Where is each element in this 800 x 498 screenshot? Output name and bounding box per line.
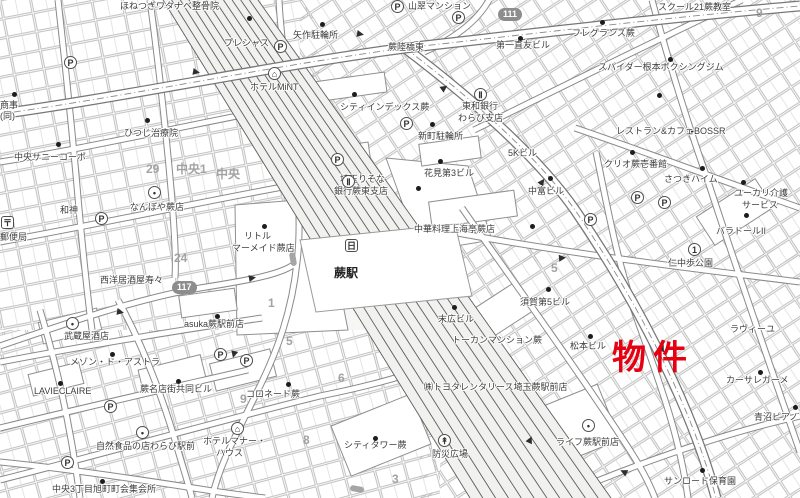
label-warabi-meitengai-bldg: 蕨名店街共同ビル [140,384,212,394]
label-clio-warabi-ichibankan: クリオ蕨壱番館 [604,159,667,169]
building-marker-dot [12,92,17,97]
building-marker-dot [700,166,705,171]
label-chuo3-shukaijo: 中央3丁目旭町町会集会所 [52,484,156,494]
building-marker-dot [668,57,673,62]
parking-icon: P [274,40,287,53]
label-block-29: 29 [146,164,159,174]
bank-icon: Ⅱ [474,88,487,101]
building-marker-dot [110,352,115,357]
label-towa-bank-2: わらび支店 [458,113,503,123]
map-label-layer: 物件 ほねつぎワタナベ整骨院山翠マンションスクール21蕨教室プレシャス矢作駐輪所… [0,0,800,498]
plaza-icon: ↟ [438,434,451,447]
building-marker-dot [352,92,357,97]
label-honetsugi-watanabe-seikotsuin: ほねつぎワタナベ整骨院 [120,1,219,11]
building-marker-dot [215,314,220,319]
label-aonuma-piano: 青沼ピアノ [754,412,798,422]
label-lavieyu: ラヴィーユ [730,324,775,334]
label-hotel-manor-2: ハウス [216,448,243,458]
label-block-chuo1: 中央1 [176,164,207,174]
label-sunroad-hoikuen: サンロード保育園 [664,476,736,486]
label-block-9: 9 [756,8,763,18]
label-block-8: 8 [303,435,310,445]
label-sansui-mansion: 山翠マンション [408,1,471,11]
label-life-warabi-ekimae: ライフ蕨駅前店 [556,437,619,447]
building-marker-dot [630,150,635,155]
parking-icon: P [240,354,253,367]
label-matsumoto-bldg: 松本ビル [570,341,606,351]
parking-icon: P [61,456,74,469]
label-yahagi-bicycle-park: 矢作駐輪所 [293,30,338,40]
building-marker-dot [438,159,443,164]
parking-icon: P [331,153,344,166]
post-office-icon: 〒 [1,216,14,229]
label-block-5a: 5 [286,336,293,346]
parking-icon: P [64,56,77,69]
label-suehiro-bldg: 末広ビル [438,314,474,324]
building-marker-dot [320,22,325,27]
building-marker-dot [373,436,378,441]
label-wajin: 和神 [60,205,78,215]
label-tokan-mansion-warabi: トーカンマンション蕨 [452,335,542,345]
label-shoji-dou: (同) [0,111,15,121]
label-musashiya-saketen: 武蔵屋酒店 [64,331,109,341]
building-marker-dot [600,20,605,25]
label-warabi-rikkyo-higashi: 蕨陸橋東 [388,42,424,52]
label-nanboya-warabi: なんぼや蕨店 [130,202,184,212]
building-marker-dot [100,479,105,484]
building-marker-dot [744,213,749,218]
hotel-icon: ⌂ [231,422,244,435]
building-marker-dot [548,176,553,181]
hotel-icon: ⌂ [268,67,281,80]
route-badge-111: 111 [498,8,522,21]
bank-icon: Ⅱ [342,175,355,188]
building-marker-dot [416,186,421,191]
parking-icon: P [400,117,413,130]
label-satsuki-heim: さつきハイム [664,174,718,184]
label-block-chuo: 中央 [216,169,240,179]
label-saitama-risona-2: 銀行蕨東支店 [334,186,388,196]
parking-icon: P [95,212,108,225]
label-colonnade-warabi: コロネード蕨 [246,389,300,399]
label-city-index-warabi: シティインデックス蕨 [340,102,429,112]
label-restaurant-cafe-bossr: レストラン&カフェBOSSR [616,126,726,136]
label-shinmachi-bicycle-park: 新町駐輪所 [418,131,463,141]
shop-icon: • [582,419,595,432]
label-school21-warabi: スクール21蕨教室 [658,2,731,12]
label-hitsuji-chiryoin: ひつじ治療院 [124,128,178,138]
map-viewport[interactable]: 物件 ほねつぎワタナベ整骨院山翠マンションスクール21蕨教室プレシャス矢作駐輪所… [0,0,800,498]
label-block-3: 3 [392,474,399,484]
parking-icon: P [452,11,465,24]
parking-icon: P [214,348,227,361]
label-5k-bldg: 5Kビル [508,148,537,158]
label-shoji: 商事 [0,100,18,110]
label-little-mermaid-1: リトル [244,231,271,241]
label-paradol-2: バラドールII [716,226,766,236]
label-block-24: 24 [174,253,187,263]
label-chuka-shanghai-tei: 中華料理上海亭蕨店 [414,224,495,234]
label-city-tower-warabi: シティタワー蕨 [344,440,406,450]
park-number-icon: 1 [688,243,701,256]
label-nichu-aruki-park: 仁中歩公園 [668,258,713,268]
label-block-1: 1 [268,298,275,308]
label-yukari-kaigo-2: サービス [742,200,778,210]
route-badge-117: 117 [172,281,197,294]
building-marker-dot [530,224,535,229]
building-marker-dot [430,122,435,127]
parking-icon: P [584,213,597,226]
building-marker-dot [247,16,252,21]
label-block-5b: 5 [551,263,558,273]
shop-icon: • [136,426,149,439]
building-marker-dot [58,381,63,386]
label-towa-bank-1: 東和銀行 [462,101,498,111]
parking-icon: P [391,0,404,13]
property-marker: 物件 [612,341,694,377]
label-lavieclaire: LAVIECLAIRE [34,386,91,396]
building-marker-dot [758,370,763,375]
label-daiichi-naotomo-bldg: 第一直友ビル [496,40,550,50]
label-hanami-dai3-bldg: 花見第3ビル [424,168,474,178]
building-marker-dot [546,287,551,292]
building-marker-dot [741,180,746,185]
label-hotel-manor-1: ホテルマナー・ [203,436,266,446]
label-bosai-hiroba: 防災広場 [432,449,468,459]
building-marker-dot [452,305,457,310]
label-block-6: 6 [338,373,345,383]
parking-icon: P [104,400,117,413]
building-marker-dot [56,142,61,147]
shop-icon: • [66,317,79,330]
label-nakatomi-bldg: 中富ビル [528,186,564,196]
building-marker-dot [145,118,150,123]
building-marker-dot [176,379,181,384]
building-marker-dot [262,224,267,229]
parking-icon: P [658,196,671,209]
building-marker-dot [657,93,662,98]
label-yukari-kaigo-1: ユーカリ介護 [734,188,788,198]
label-fragrance-warabi: フレグランス蕨 [572,28,635,38]
label-precious: プレシャス [224,38,269,48]
building-marker-dot [286,382,291,387]
label-suga-dai5-bldg: 須賀第5ビル [520,297,570,307]
label-hotel-mint: ホテルMiNT [250,82,299,92]
label-shizenshokuhin-warabi: 自然食品の店わらび駅前 [96,441,195,451]
station-icon: 日 [345,239,358,252]
label-toyota-rentalease: ㈱トヨタレンタリース埼玉蕨駅前店 [424,382,568,392]
building-marker-dot [588,334,593,339]
building-marker-dot [518,36,523,41]
label-seiyo-izakaya-suzu: 西洋居酒屋寿々 [100,275,163,285]
label-maison-de-astra: メゾン・ド・アストラ [70,357,160,367]
label-chuo-sunny-corpo: 中央サニーコーポ [14,152,86,162]
building-marker-dot [793,405,798,410]
label-asuka-warabi-ekimae: asuka蕨駅前店 [184,319,244,329]
label-casa-regame: カーサレガーメ [726,375,788,385]
label-little-mermaid-2: マーメイド蕨店 [232,243,295,253]
label-warabi-station: 蕨駅 [334,268,358,278]
parking-icon: P [631,191,644,204]
shop-icon: • [148,186,161,199]
label-post-office: 郵便局 [0,232,27,242]
building-marker-dot [700,468,705,473]
label-spider-nemoto-boxing-gym: スパイダー根本ボクシングジム [598,62,724,72]
